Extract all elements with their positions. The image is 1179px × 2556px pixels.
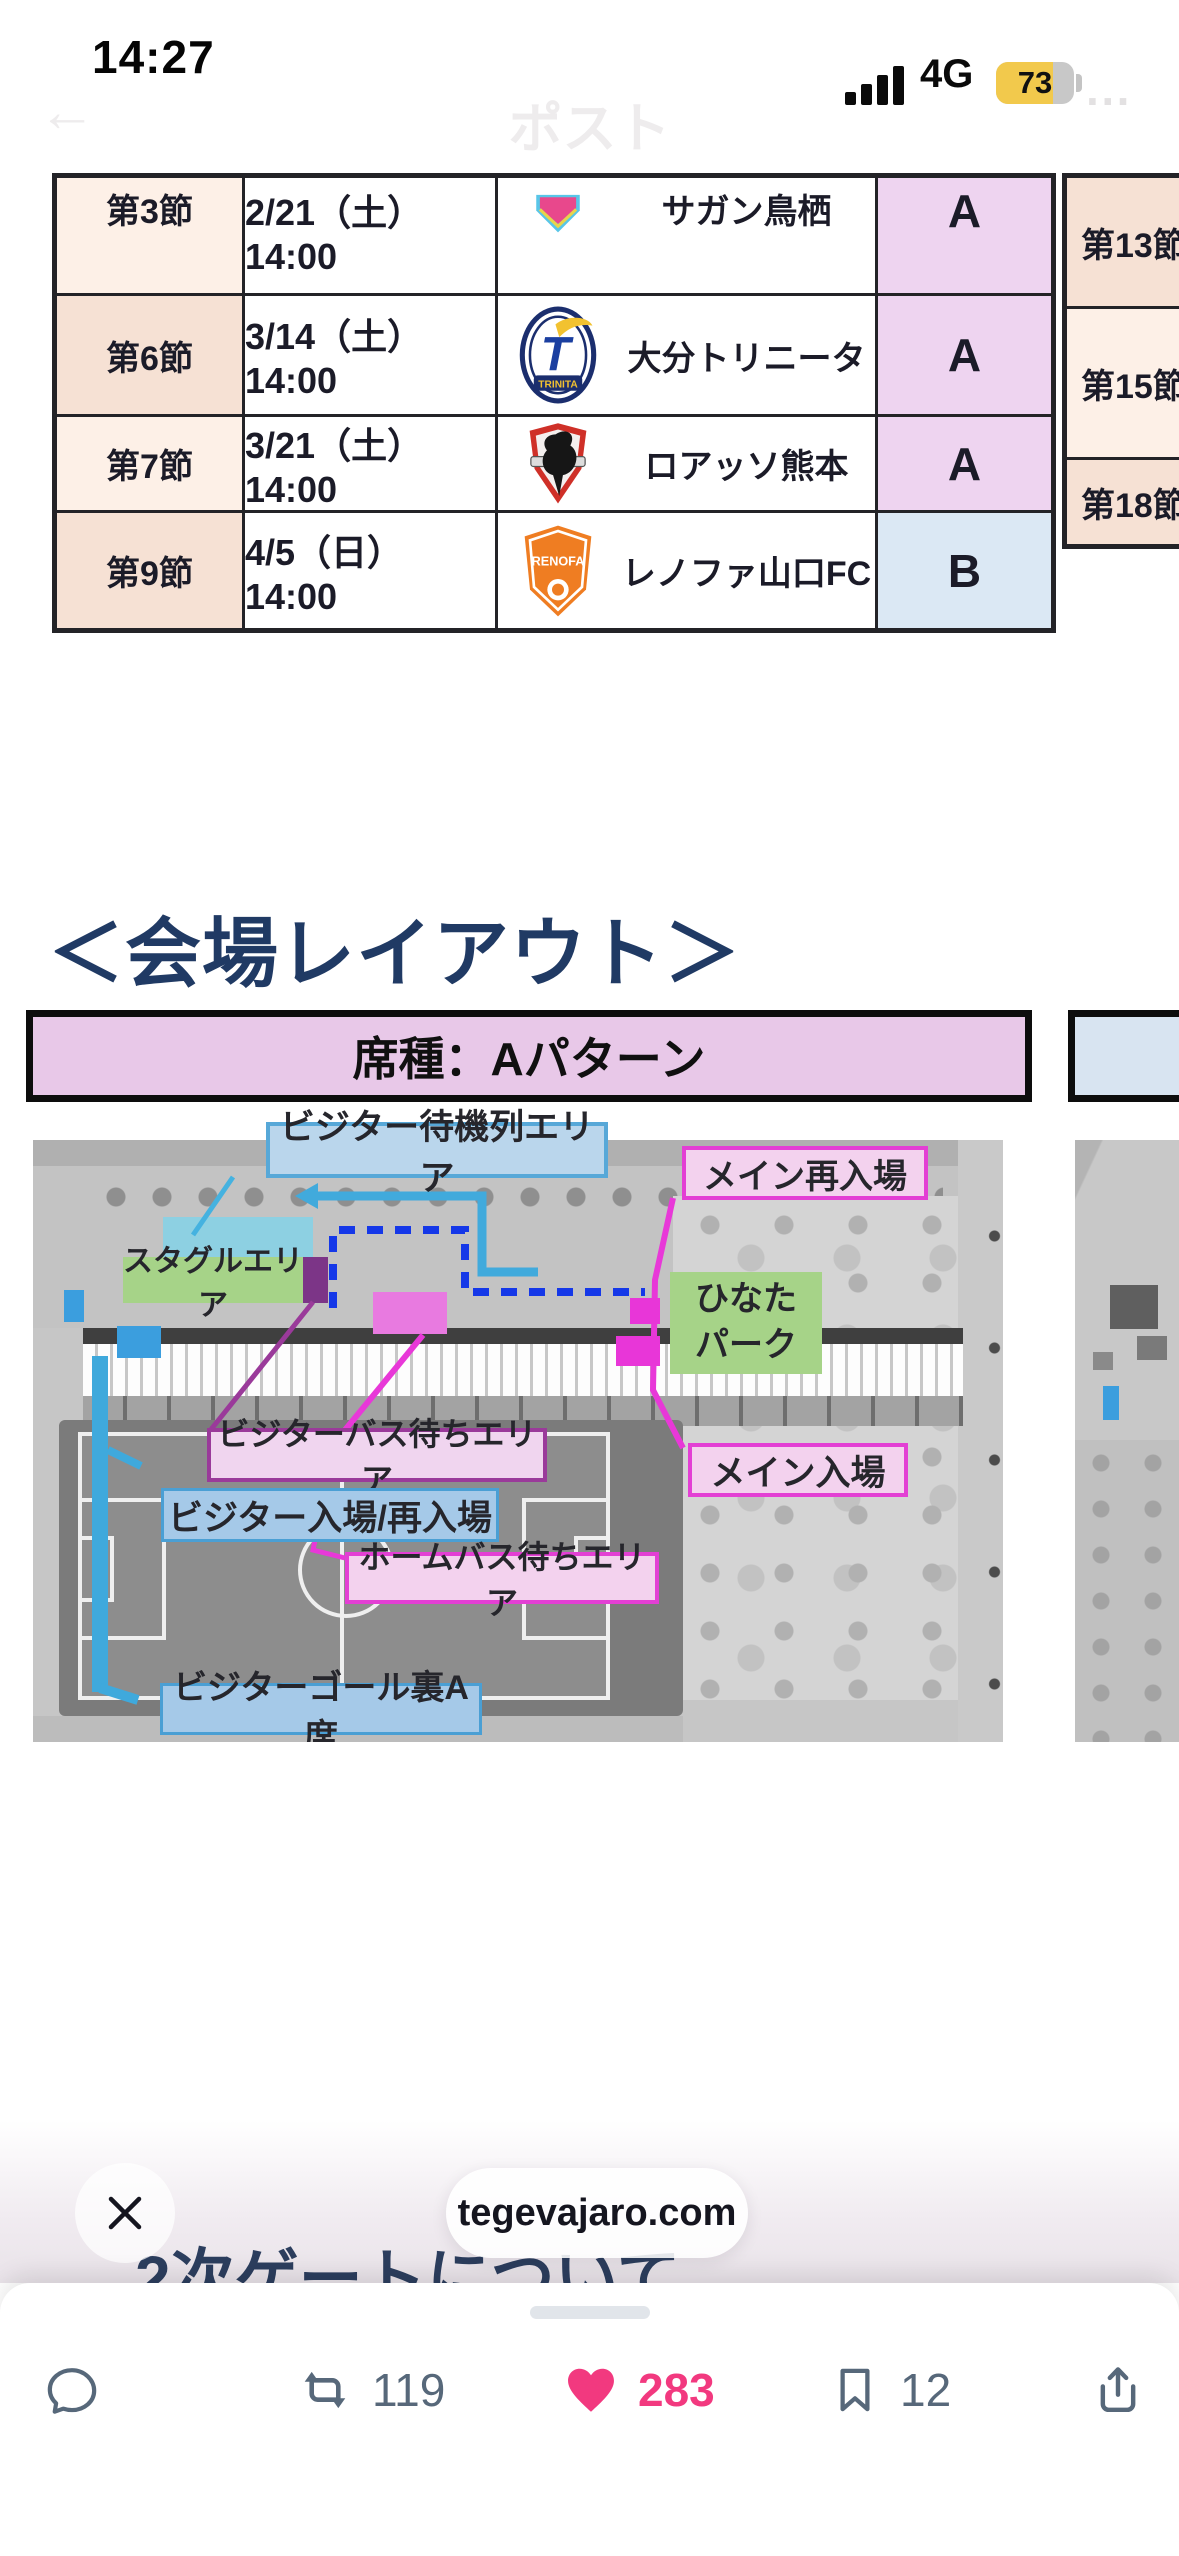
svg-text:T: T	[541, 327, 574, 381]
venue-layout-heading: ＜会場レイアウト＞	[48, 892, 741, 1002]
fixture-date: 4/5（日）14:00	[245, 513, 495, 628]
map-label-main-reentry: メイン再入場	[682, 1146, 928, 1200]
team-name: レノファ山口FC	[618, 546, 875, 595]
share-button[interactable]	[1090, 2362, 1146, 2418]
fixture-round: 第13節	[1067, 178, 1179, 306]
map-label-home-bus-wait: ホームバス待ちエリア	[345, 1552, 659, 1604]
fixture-team-cell: T TRINITA 大分トリニータ	[498, 296, 875, 414]
x-icon	[101, 2189, 149, 2237]
main-gate-marker	[616, 1336, 660, 1366]
sheet-grabber[interactable]	[530, 2306, 650, 2319]
purple-zone	[300, 1257, 328, 1303]
renofa-yamaguchi-logo: RENOFA	[498, 523, 618, 619]
map-b-texture	[1075, 1440, 1179, 1742]
heart-icon	[562, 2361, 620, 2419]
bookmark-icon	[828, 2363, 882, 2417]
blue-gate-marker	[64, 1290, 84, 1322]
visitor-seat-strip	[92, 1356, 108, 1692]
page-title: ポスト	[0, 84, 1179, 163]
fixture-round: 第6節	[57, 296, 242, 414]
map-b-building	[1093, 1352, 1113, 1370]
trinita-wordmark: TRINITA	[538, 380, 578, 391]
reply-icon	[44, 2362, 100, 2418]
bookmark-count: 12	[900, 2363, 951, 2417]
share-icon	[1090, 2362, 1146, 2418]
visitor-seat-callout	[100, 1688, 138, 1700]
reply-button[interactable]	[44, 2362, 100, 2418]
sagan-tosu-logo	[498, 184, 618, 242]
venue-map-pattern-a: スタグルエリア メイン再入場 ひなた パーク ビジターバス待ちエリア ビジター入…	[33, 1140, 1003, 1742]
map-b-building	[1110, 1285, 1158, 1329]
fixture-table: 第3節 2/21（土）14:00 サガン鳥栖 A 第6節 3/14（土）14:0…	[52, 173, 1056, 633]
fixture-round: 第18節	[1067, 460, 1179, 544]
map-label-visitor-goal-seat: ビジターゴール裏A席	[160, 1683, 482, 1735]
team-name: 大分トリニータ	[618, 331, 875, 380]
fixture-table-secondary: 第13節 第15節 第18節	[1062, 173, 1179, 549]
fixture-round: 第15節	[1067, 309, 1179, 457]
pattern-cell: B	[878, 513, 1051, 628]
retweet-icon	[296, 2361, 354, 2419]
fixture-team-cell: ロアッソ熊本	[498, 417, 875, 510]
pattern-cell: A	[878, 178, 1051, 293]
pattern-cell: A	[878, 296, 1051, 414]
team-name: ロアッソ熊本	[618, 439, 875, 488]
main-gate-marker	[630, 1298, 660, 1324]
oita-trinita-logo: T TRINITA	[498, 304, 618, 406]
map-b-gate-marker	[1103, 1386, 1119, 1420]
map-label-stadium-gourmet: スタグルエリア	[123, 1257, 303, 1303]
map-b-building	[1137, 1336, 1167, 1360]
map-label-visitor-queue: ビジター待機列エリア	[266, 1122, 608, 1178]
roasso-kumamoto-logo	[498, 419, 618, 509]
fixture-round: 第7節	[57, 417, 242, 510]
repost-button[interactable]: 119	[296, 2361, 445, 2419]
pattern-cell: A	[878, 417, 1051, 510]
screenshot-root: { "status_bar": { "time": "14:27", "netw…	[0, 0, 1179, 2556]
fixture-date: 3/21（土）14:00	[245, 417, 495, 510]
visitor-bus-zone	[373, 1292, 447, 1334]
like-count: 283	[638, 2363, 715, 2417]
fixture-team-cell: RENOFA レノファ山口FC	[498, 513, 875, 628]
renofa-wordmark: RENOFA	[532, 554, 585, 568]
team-name: サガン鳥栖	[618, 184, 875, 233]
tweet-action-bar: 119 283 12	[0, 2355, 1179, 2425]
map-label-hinata-park: ひなた パーク	[670, 1272, 822, 1374]
fixture-date: 2/21（土）14:00	[245, 178, 495, 293]
venue-map-pattern-b-partial	[1075, 1140, 1179, 1742]
like-button[interactable]: 283	[562, 2361, 715, 2419]
fixture-date: 3/14（土）14:00	[245, 296, 495, 414]
fixture-team-cell: サガン鳥栖	[498, 178, 875, 293]
status-time: 14:27	[92, 30, 215, 84]
bottom-sheet: 119 283 12	[0, 2283, 1179, 2556]
visitor-entry-callout	[108, 1450, 141, 1466]
fixture-round: 第3節	[57, 178, 242, 293]
blue-gate-marker	[117, 1326, 161, 1358]
bookmark-button[interactable]: 12	[828, 2363, 951, 2417]
link-domain-pill[interactable]: tegevajaro.com	[446, 2168, 748, 2258]
close-button[interactable]	[75, 2163, 175, 2263]
repost-count: 119	[372, 2363, 445, 2417]
seat-pattern-a-banner: 席種：Aパターン	[26, 1010, 1032, 1102]
map-label-visitor-bus-wait: ビジターバス待ちエリア	[207, 1428, 547, 1482]
fixture-round: 第9節	[57, 513, 242, 628]
map-label-main-entry: メイン入場	[688, 1443, 908, 1497]
more-icon[interactable]: ···	[1086, 74, 1132, 128]
seat-pattern-b-banner	[1068, 1010, 1179, 1102]
